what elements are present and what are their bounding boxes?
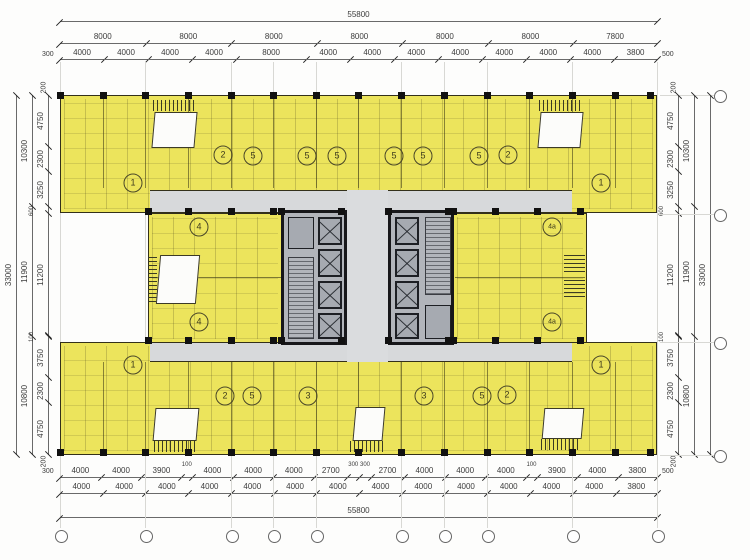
- unit-type-label: 1: [124, 356, 143, 375]
- unit-type-label: 1: [592, 174, 611, 193]
- unit-type-label: 2: [499, 146, 518, 165]
- wall-line: [615, 362, 616, 452]
- unit-type-label: 5: [470, 147, 489, 166]
- grid-bubble: [714, 209, 727, 222]
- core-room: [288, 217, 314, 249]
- column: [647, 449, 654, 456]
- wall-line: [231, 362, 232, 452]
- elevator-shaft: [395, 313, 419, 339]
- column: [100, 92, 107, 99]
- wall-line: [615, 97, 616, 188]
- grid-line: [660, 342, 716, 343]
- column: [484, 92, 491, 99]
- column: [145, 337, 152, 344]
- light-well: [353, 407, 386, 441]
- column: [398, 449, 405, 456]
- column: [228, 449, 235, 456]
- unit-type-label: 4: [190, 218, 209, 237]
- column: [142, 92, 149, 99]
- wall-line: [529, 362, 530, 452]
- grid-line: [660, 455, 716, 456]
- light-well: [537, 112, 583, 148]
- column: [534, 337, 541, 344]
- column: [228, 208, 235, 215]
- column: [484, 449, 491, 456]
- column: [441, 449, 448, 456]
- grid-bubble: [55, 530, 68, 543]
- column: [185, 92, 192, 99]
- grid-line: [660, 214, 716, 215]
- column: [355, 92, 362, 99]
- unit-type-label: 5: [298, 147, 317, 166]
- unit-type-label: 4a: [543, 313, 562, 332]
- column: [355, 449, 362, 456]
- unit-type-label: 1: [592, 356, 611, 375]
- unit-type-label: 3: [299, 387, 318, 406]
- wall-line: [273, 97, 274, 188]
- elevator-shaft: [318, 249, 342, 277]
- column: [57, 449, 64, 456]
- grid-bubble: [226, 530, 239, 543]
- elevator-shaft: [318, 217, 342, 245]
- column: [338, 337, 345, 344]
- unit-type-label: 4: [190, 313, 209, 332]
- grid-bubble: [140, 530, 153, 543]
- balcony-hatch: [539, 100, 580, 111]
- column: [577, 337, 584, 344]
- column: [450, 208, 457, 215]
- elevator-shaft: [318, 313, 342, 339]
- wall-line: [444, 97, 445, 188]
- grid-bubble: [311, 530, 324, 543]
- column: [569, 92, 576, 99]
- unit-type-label: 5: [473, 387, 492, 406]
- column: [526, 92, 533, 99]
- column: [450, 337, 457, 344]
- balcony-hatch: [564, 252, 585, 272]
- wall-line: [273, 362, 274, 452]
- column: [569, 449, 576, 456]
- core-left: [281, 210, 347, 345]
- light-well: [156, 255, 200, 304]
- grid-bubble: [396, 530, 409, 543]
- column: [145, 208, 152, 215]
- column: [441, 92, 448, 99]
- column: [228, 337, 235, 344]
- light-well: [153, 408, 200, 441]
- column: [338, 208, 345, 215]
- unit-type-label: 1: [124, 174, 143, 193]
- wall-line: [444, 362, 445, 452]
- grid-bubble: [714, 450, 727, 463]
- wall-line: [103, 97, 104, 188]
- column: [278, 337, 285, 344]
- unit-type-label: 2: [216, 387, 235, 406]
- unit-type-label: 5: [328, 147, 347, 166]
- column: [142, 449, 149, 456]
- column: [185, 337, 192, 344]
- column: [647, 92, 654, 99]
- wall-line: [231, 97, 232, 188]
- column: [270, 449, 277, 456]
- wall-line: [487, 97, 488, 188]
- floor-plan: 1255555521444a4a12533521: [0, 0, 750, 560]
- grid-bubble: [482, 530, 495, 543]
- elevator-shaft: [395, 281, 419, 309]
- wall-line: [316, 97, 317, 188]
- column: [534, 208, 541, 215]
- unit-type-label: 5: [385, 147, 404, 166]
- grid-bubble: [439, 530, 452, 543]
- grid-bubble: [714, 337, 727, 350]
- wall-line: [103, 362, 104, 452]
- unit-type-label: 5: [244, 147, 263, 166]
- grid-bubble: [714, 90, 727, 103]
- column: [612, 449, 619, 456]
- light-well: [151, 112, 197, 148]
- stair-right: [425, 217, 451, 295]
- column: [612, 92, 619, 99]
- column: [385, 208, 392, 215]
- column: [278, 208, 285, 215]
- column: [577, 208, 584, 215]
- wall-line: [401, 97, 402, 188]
- core-room: [425, 305, 451, 339]
- column: [313, 449, 320, 456]
- column: [398, 92, 405, 99]
- elevator-shaft: [395, 217, 419, 245]
- grid-bubble: [567, 530, 580, 543]
- wall-line: [487, 362, 488, 452]
- balcony-hatch: [153, 100, 194, 111]
- wall-line: [401, 362, 402, 452]
- column: [185, 449, 192, 456]
- wall-line: [145, 97, 146, 188]
- column: [270, 337, 277, 344]
- wall-line: [145, 362, 146, 452]
- elevator-shaft: [318, 281, 342, 309]
- column: [100, 449, 107, 456]
- core-right: [388, 210, 454, 345]
- column: [228, 92, 235, 99]
- column: [57, 92, 64, 99]
- grid-bubble: [268, 530, 281, 543]
- column: [313, 92, 320, 99]
- grid-line: [657, 62, 658, 528]
- column: [492, 208, 499, 215]
- unit-type-label: 3: [415, 387, 434, 406]
- balcony-hatch: [564, 277, 585, 297]
- elevator-shaft: [395, 249, 419, 277]
- unit-type-label: 4a: [543, 218, 562, 237]
- column: [270, 92, 277, 99]
- grid-line: [660, 95, 716, 96]
- light-well: [542, 408, 585, 439]
- column: [185, 208, 192, 215]
- stair-left: [288, 257, 314, 339]
- unit-type-label: 5: [243, 387, 262, 406]
- column: [270, 208, 277, 215]
- wall-line: [358, 97, 359, 188]
- unit-type-label: 5: [414, 147, 433, 166]
- grid-bubble: [652, 530, 665, 543]
- unit-type-label: 2: [498, 386, 517, 405]
- floor-plan-sheet: 55800 8000800080008000800080007800 40004…: [0, 0, 750, 560]
- wall-line: [529, 97, 530, 188]
- column: [492, 337, 499, 344]
- elevator-lobby: [347, 190, 388, 362]
- column: [385, 337, 392, 344]
- unit-type-label: 2: [214, 146, 233, 165]
- wall-line: [316, 362, 317, 452]
- column: [526, 449, 533, 456]
